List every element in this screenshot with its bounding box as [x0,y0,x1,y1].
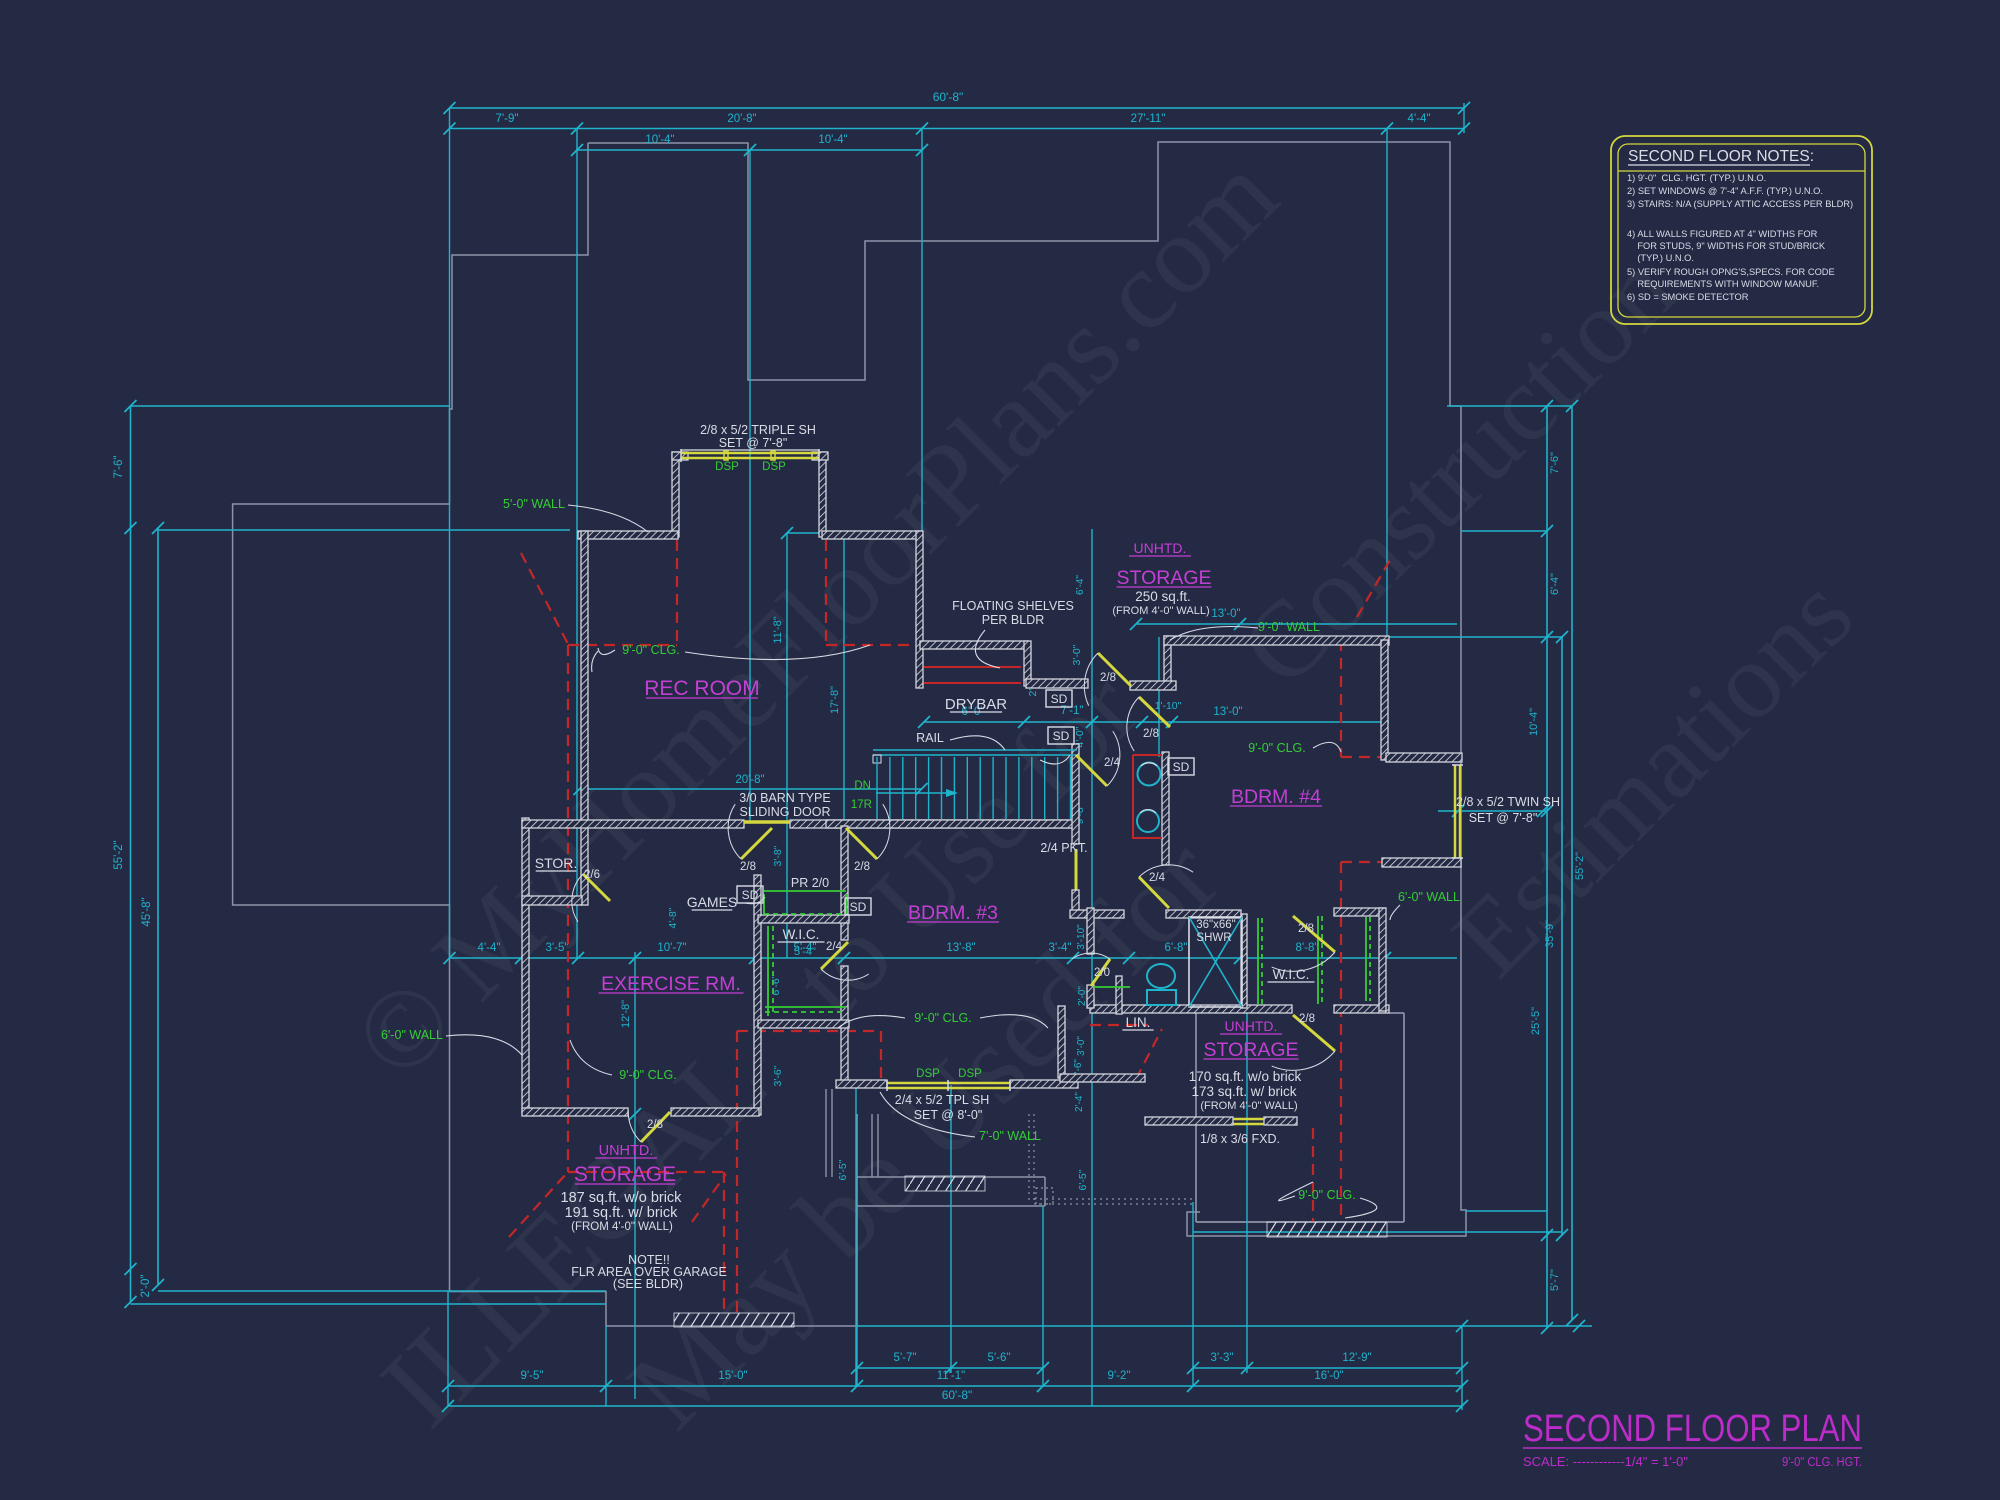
svg-text:W.I.C.: W.I.C. [1273,967,1310,982]
svg-text:EXERCISE RM.: EXERCISE RM. [601,973,741,995]
svg-text:(FROM 4'-0" WALL): (FROM 4'-0" WALL) [1112,605,1209,617]
svg-text:SET @ 7'-8": SET @ 7'-8" [719,436,788,450]
svg-text:5'-6": 5'-6" [988,1352,1011,1364]
svg-text:11'-8": 11'-8" [772,616,784,643]
svg-text:12'-9": 12'-9" [1342,1352,1371,1364]
svg-text:STORAGE: STORAGE [574,1163,676,1186]
svg-text:2/8 x 5/2 TRIPLE SH: 2/8 x 5/2 TRIPLE SH [700,423,816,437]
svg-text:17'-8": 17'-8" [829,686,841,714]
svg-text:FOR STUDS, 9" WIDTHS FOR STUD/: FOR STUDS, 9" WIDTHS FOR STUD/BRICK [1627,241,1826,251]
svg-text:1/8 x 3/6 FXD.: 1/8 x 3/6 FXD. [1200,1132,1280,1146]
svg-text:6'-5": 6'-5" [837,1159,849,1180]
svg-text:45'-8": 45'-8" [141,897,153,926]
svg-text:4'-4": 4'-4" [1408,113,1431,125]
svg-text:GAMES: GAMES [687,894,738,910]
svg-text:2/0: 2/0 [1094,967,1110,979]
svg-text:SD: SD [1053,729,1070,743]
svg-text:REQUIREMENTS WITH WINDOW MANUF: REQUIREMENTS WITH WINDOW MANUF. [1627,279,1819,289]
svg-text:12'-8": 12'-8" [620,1000,632,1028]
svg-text:9'-0" CLG.: 9'-0" CLG. [1248,741,1306,755]
svg-text:SHWR: SHWR [1196,932,1231,944]
svg-text:13'-0": 13'-0" [1213,706,1242,718]
svg-text:(FROM 4'-0" WALL): (FROM 4'-0" WALL) [571,1221,673,1233]
svg-text:3'-4": 3'-4" [1049,942,1072,954]
svg-text:9'-0" CLG.: 9'-0" CLG. [622,643,680,657]
svg-text:9'-0" CLG. HGT.: 9'-0" CLG. HGT. [1782,1455,1862,1469]
svg-text:2) SET WINDOWS @ 7'-4" A.F.F.: 2) SET WINDOWS @ 7'-4" A.F.F. (TYP.) U.N… [1627,186,1823,196]
svg-text:(TYP.) U.N.O.: (TYP.) U.N.O. [1627,253,1694,263]
svg-text:UNHTD.: UNHTD. [1225,1018,1278,1034]
svg-text:DSP: DSP [715,461,739,473]
svg-text:2/4 x 5/2 TPL SH: 2/4 x 5/2 TPL SH [895,1093,990,1107]
svg-text:10'-7": 10'-7" [657,942,686,954]
svg-text:SD: SD [850,900,867,914]
svg-text:SET @ 7'-8": SET @ 7'-8" [1469,811,1538,825]
svg-text:DSP: DSP [958,1068,982,1080]
svg-text:SD: SD [742,888,759,902]
svg-text:36"x66": 36"x66" [1196,919,1236,931]
svg-text:2/8: 2/8 [1100,672,1116,684]
svg-text:2/4: 2/4 [826,941,843,953]
svg-text:3'-5": 3'-5" [546,942,569,954]
svg-text:2/4: 2/4 [1149,872,1166,884]
svg-text:STORAGE: STORAGE [1117,567,1212,589]
svg-text:SET @ 8'-0": SET @ 8'-0" [914,1108,983,1122]
svg-text:2/8: 2/8 [1143,728,1159,740]
svg-text:(SEE BLDR): (SEE BLDR) [613,1277,683,1291]
svg-text:5'-4": 5'-4" [794,946,816,958]
svg-text:DSP: DSP [916,1068,940,1080]
svg-text:2/4 PKT.: 2/4 PKT. [1040,841,1087,855]
svg-text:17R: 17R [851,799,872,811]
svg-text:55'-2": 55'-2" [1574,852,1586,880]
svg-text:20'-8": 20'-8" [727,113,756,125]
svg-text:LIN.: LIN. [1126,1015,1151,1030]
svg-text:2/4: 2/4 [1104,757,1121,769]
svg-text:191 sq.ft. w/ brick: 191 sq.ft. w/ brick [565,1205,679,1221]
svg-text:16'-0": 16'-0" [1314,1370,1343,1382]
svg-text:170 sq.ft. w/o brick: 170 sq.ft. w/o brick [1189,1069,1302,1084]
svg-text:RAIL: RAIL [916,731,944,745]
svg-text:3'-3": 3'-3" [1211,1352,1234,1364]
svg-text:27'-11": 27'-11" [1131,113,1166,125]
svg-text:6'-4": 6'-4" [1075,575,1086,595]
svg-text:2/8 x 5/2 TWIN SH: 2/8 x 5/2 TWIN SH [1456,795,1560,809]
svg-text:20'-8": 20'-8" [735,774,764,786]
svg-text:6'-4": 6'-4" [1549,573,1561,595]
svg-text:4) ALL WALLS FIGURED AT 4" WID: 4) ALL WALLS FIGURED AT 4" WIDTHS FOR [1627,229,1818,239]
svg-text:4'-8": 4'-8" [667,907,679,928]
svg-text:6) SD = SMOKE DETECTOR: 6) SD = SMOKE DETECTOR [1627,292,1749,302]
svg-text:7'-6": 7'-6" [113,456,125,479]
svg-text:2/8: 2/8 [1299,1013,1315,1025]
svg-text:6'-0" WALL: 6'-0" WALL [1398,890,1460,904]
svg-text:9'-5": 9'-5" [521,1370,544,1382]
svg-text:DSP: DSP [762,461,786,473]
svg-text:2/8: 2/8 [854,861,870,873]
svg-text:9'-0" CLG.: 9'-0" CLG. [619,1068,677,1082]
svg-text:25'-5": 25'-5" [1530,1007,1542,1035]
svg-text:SECOND FLOOR PLAN: SECOND FLOOR PLAN [1523,1408,1862,1450]
svg-text:W.I.C.: W.I.C. [783,927,820,942]
svg-text:5'-7": 5'-7" [894,1352,917,1364]
svg-text:DRYBAR: DRYBAR [945,696,1007,713]
svg-text:55'-2": 55'-2" [113,840,125,869]
svg-text:10'-4": 10'-4" [818,134,847,146]
svg-text:2/8: 2/8 [740,861,756,873]
svg-text:BDRM. #3: BDRM. #3 [908,902,998,924]
svg-text:8'-8": 8'-8" [1296,942,1319,954]
svg-text:2/8: 2/8 [1298,923,1314,935]
svg-text:1) 9'-0" CLG. HGT. (TYP.) U.N: 1) 9'-0" CLG. HGT. (TYP.) U.N.O. [1627,173,1766,183]
svg-text:REC ROOM: REC ROOM [644,677,760,700]
svg-text:STORAGE: STORAGE [1204,1039,1299,1061]
svg-text:2/6: 2/6 [584,869,600,881]
svg-text:6'-8": 6'-8" [1165,942,1188,954]
svg-text:3'-8": 3'-8" [772,845,784,866]
svg-text:9'-0" CLG.: 9'-0" CLG. [1298,1188,1356,1202]
svg-text:FLOATING SHELVES: FLOATING SHELVES [952,599,1074,613]
svg-text:250 sq.ft.: 250 sq.ft. [1135,589,1191,604]
svg-text:3) STAIRS: N/A (SUPPLY ATTIC A: 3) STAIRS: N/A (SUPPLY ATTIC ACCESS PER … [1627,199,1853,209]
svg-text:9'-2": 9'-2" [1108,1370,1131,1382]
svg-text:SCALE: ------------1/4" = 1'-0: SCALE: ------------1/4" = 1'-0" [1523,1455,1688,1469]
svg-text:3/0 BARN TYPE: 3/0 BARN TYPE [739,791,830,805]
svg-text:13'-0": 13'-0" [1211,608,1240,620]
svg-text:13'-8": 13'-8" [946,942,975,954]
svg-text:SECOND FLOOR NOTES:: SECOND FLOOR NOTES: [1628,148,1814,165]
svg-text:7'-0" WALL: 7'-0" WALL [979,1129,1041,1143]
svg-text:6'-6": 6'-6" [770,974,782,995]
svg-text:187 sq.ft. w/o brick: 187 sq.ft. w/o brick [561,1190,683,1206]
svg-text:PR 2/0: PR 2/0 [791,876,829,890]
svg-text:9'-0" CLG.: 9'-0" CLG. [914,1011,972,1025]
svg-text:DN: DN [854,780,871,792]
svg-text:9'-0" WALL: 9'-0" WALL [1258,620,1320,634]
svg-text:4'-4": 4'-4" [478,942,501,954]
svg-text:6'-5": 6'-5" [1077,1169,1089,1190]
svg-text:5'-7": 5'-7" [1549,1269,1561,1291]
svg-text:UNHTD.: UNHTD. [599,1143,654,1159]
svg-text:15'-0": 15'-0" [718,1370,747,1382]
svg-text:10'-4": 10'-4" [645,134,674,146]
svg-text:PER BLDR: PER BLDR [982,613,1045,627]
svg-text:5'-0" WALL: 5'-0" WALL [503,497,565,511]
svg-text:UNHTD.: UNHTD. [1134,540,1187,556]
svg-text:10'-4": 10'-4" [1528,708,1540,736]
svg-text:2'-4": 2'-4" [1074,1092,1085,1112]
svg-text:3'-0": 3'-0" [1076,1036,1087,1056]
svg-text:BDRM. #4: BDRM. #4 [1231,786,1321,808]
svg-text:3'-6": 3'-6" [772,1065,784,1086]
svg-text:35'-9": 35'-9" [1544,920,1556,948]
svg-text:2'-0": 2'-0" [140,1275,152,1298]
svg-text:2'-0": 2'-0" [1077,986,1088,1006]
svg-text:7'-9": 7'-9" [496,113,519,125]
svg-text:5) VERIFY ROUGH OPNG'S,SPECS.: 5) VERIFY ROUGH OPNG'S,SPECS. FOR CODE [1627,267,1835,277]
svg-text:(FROM 4'-0" WALL): (FROM 4'-0" WALL) [1200,1100,1297,1112]
svg-text:6'-0" WALL: 6'-0" WALL [381,1028,443,1042]
svg-text:SD: SD [1173,760,1190,774]
svg-text:3'-10": 3'-10" [1076,924,1087,950]
svg-text:173 sq.ft. w/ brick: 173 sq.ft. w/ brick [1191,1084,1296,1099]
svg-text:SD: SD [1051,692,1068,706]
svg-text:2/8: 2/8 [647,1119,663,1131]
svg-text:3'-0": 3'-0" [1071,644,1083,665]
svg-text:7'-6": 7'-6" [1549,452,1561,474]
svg-text:SLIDING DOOR: SLIDING DOOR [740,805,831,819]
svg-text:STOR.: STOR. [535,855,578,871]
svg-text:60'-8": 60'-8" [933,90,964,104]
svg-text:60'-8": 60'-8" [942,1388,973,1402]
